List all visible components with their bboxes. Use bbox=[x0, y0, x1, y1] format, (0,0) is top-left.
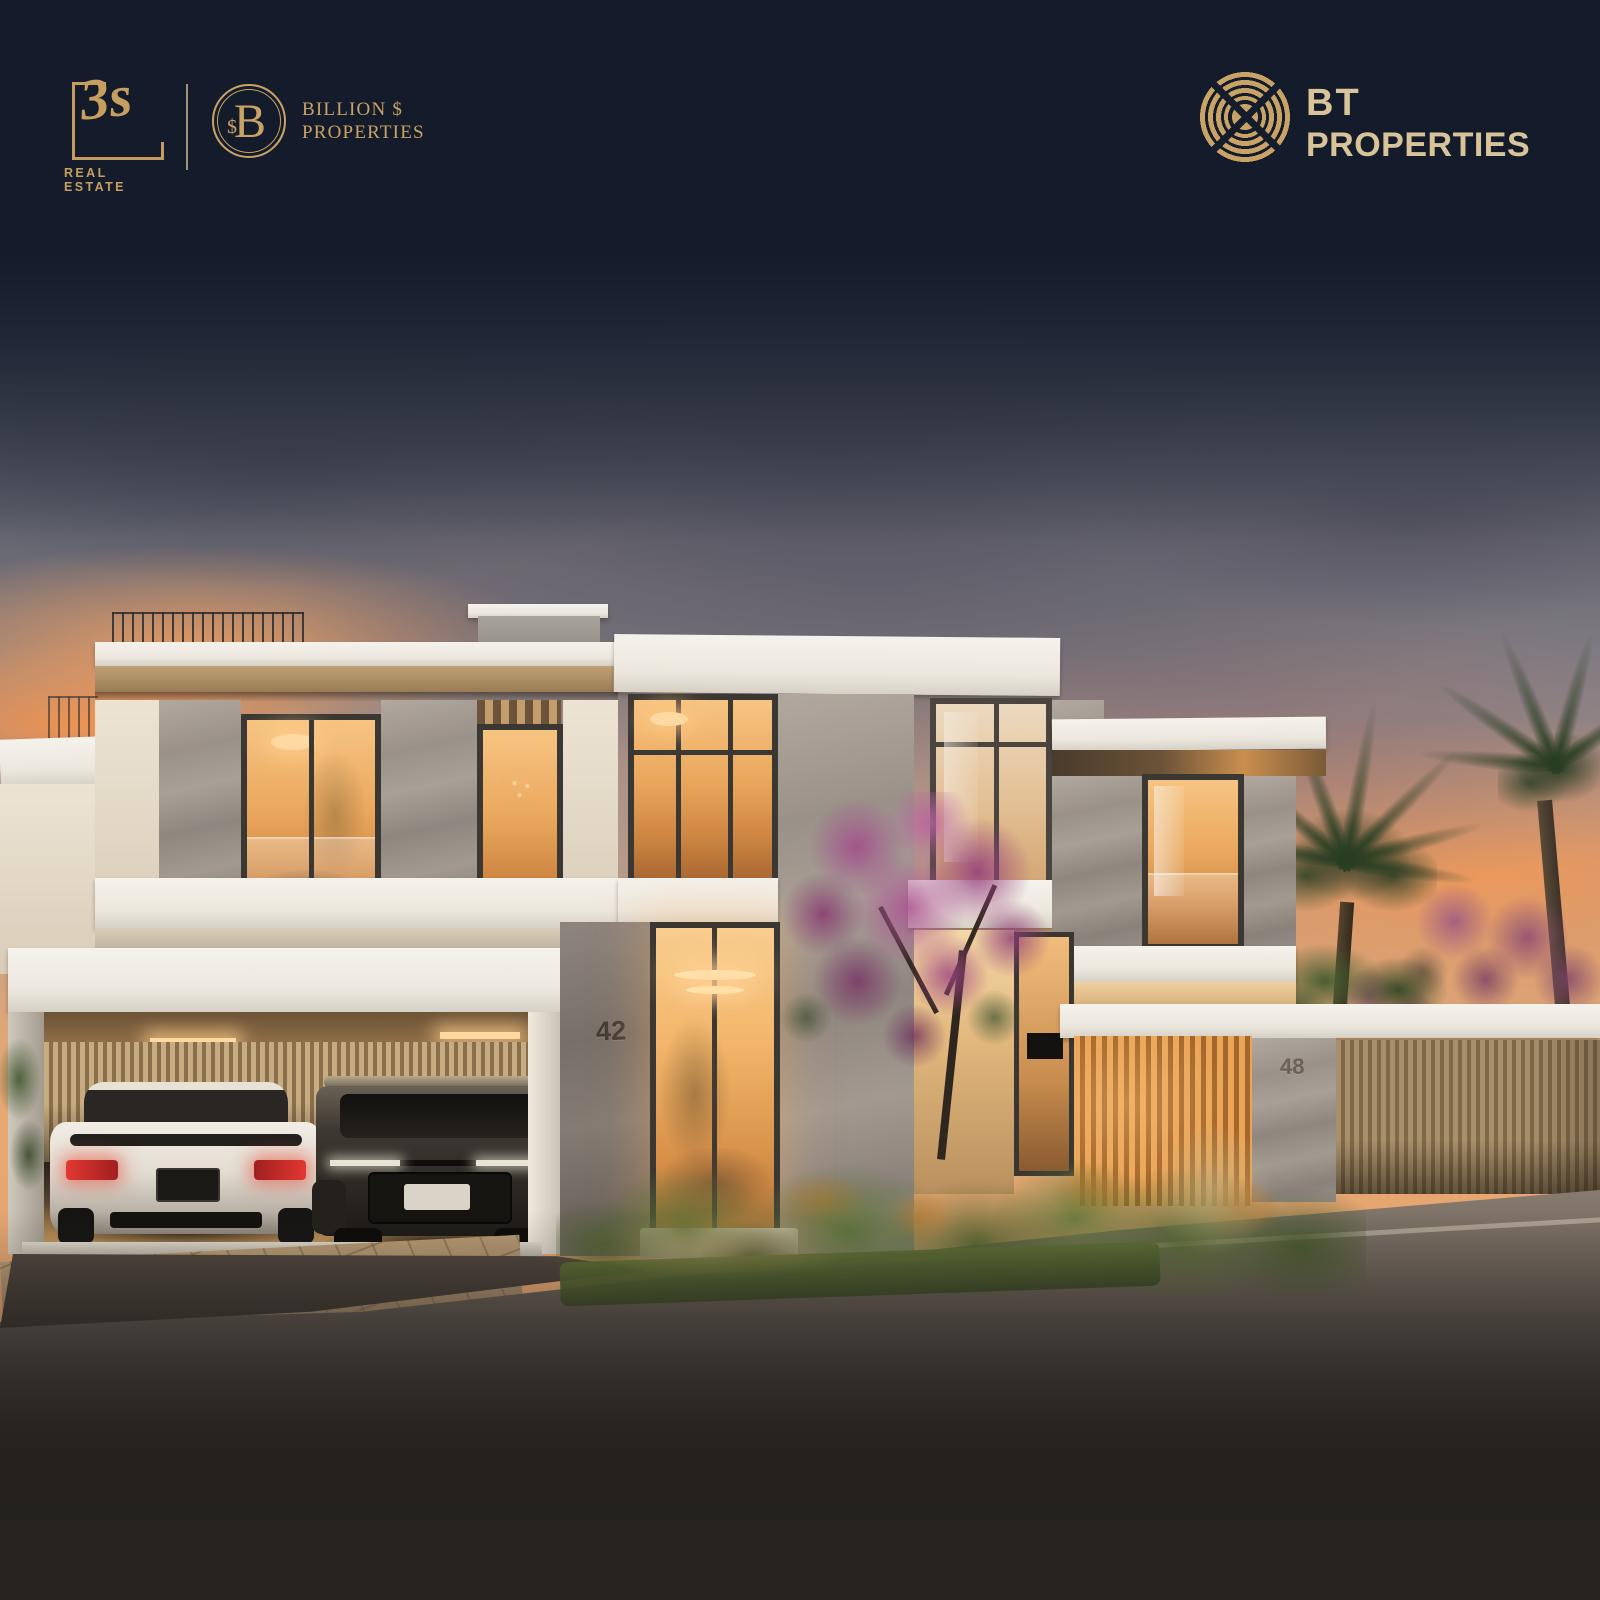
billion-line1: BILLION $ bbox=[302, 98, 425, 121]
roof-fascia bbox=[95, 642, 618, 666]
logo-divider bbox=[186, 84, 188, 170]
logo-3s-monogram: 3s bbox=[77, 61, 135, 133]
bracket-left bbox=[72, 82, 75, 160]
bt-line2: PROPERTIES bbox=[1306, 128, 1530, 162]
bracket-bottom bbox=[72, 157, 164, 160]
logo-billion-monogram: B $ bbox=[212, 84, 286, 158]
bougainvillea-canopy bbox=[772, 792, 1057, 1097]
roof-soffit-dark bbox=[1052, 750, 1326, 776]
dollar-icon: $ bbox=[227, 116, 237, 139]
logo-bt-wordmark: BT PROPERTIES bbox=[1306, 84, 1530, 162]
roof-wood-soffit bbox=[95, 666, 618, 692]
billion-line2: PROPERTIES bbox=[302, 121, 425, 144]
window-transom bbox=[634, 750, 772, 755]
monogram-letter: B bbox=[234, 94, 266, 149]
roof-fascia bbox=[614, 634, 1060, 696]
logo-billion-wordmark: BILLION $ PROPERTIES bbox=[302, 98, 425, 144]
bracket-stub bbox=[161, 142, 164, 160]
logo-3s: 3s bbox=[72, 76, 164, 164]
shrubs-left bbox=[0, 1022, 48, 1212]
pergola-louvers bbox=[477, 700, 561, 724]
bt-line1: BT bbox=[1306, 84, 1530, 122]
ceiling-light bbox=[650, 712, 688, 726]
logo-bt-medallion-icon bbox=[1198, 70, 1292, 164]
roof-fascia bbox=[1052, 717, 1326, 752]
poster-canvas: 42 48 bbox=[0, 0, 1600, 1600]
logo-3s-caption: REAL ESTATE bbox=[64, 166, 174, 194]
bottom-vignette bbox=[0, 1210, 1600, 1600]
